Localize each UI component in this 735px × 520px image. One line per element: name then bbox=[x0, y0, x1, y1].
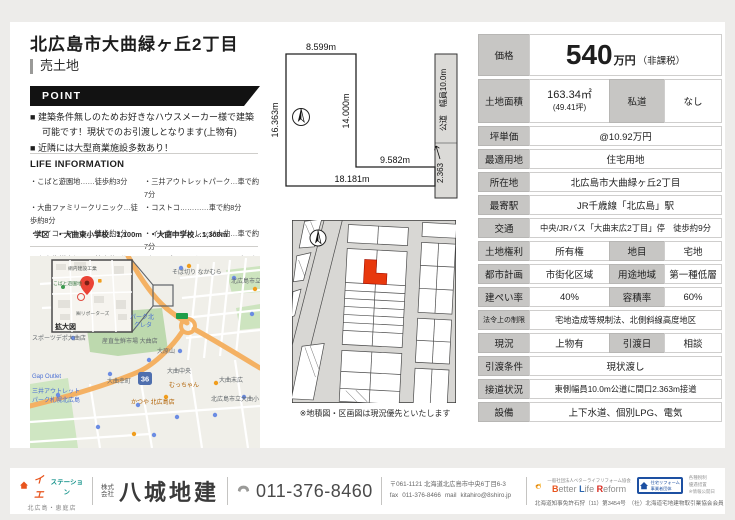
row-value: 住宅用地 bbox=[529, 149, 722, 169]
row-sublabel: 用途地域 bbox=[609, 264, 665, 284]
dim-right-inner: 14.000m bbox=[341, 93, 351, 128]
table-row: 交通 中央/JRバス「大曲末広2丁目」停 徒歩約9分 bbox=[478, 218, 722, 238]
table-row: 土地権利 所有権 地目 宅地 bbox=[478, 241, 722, 261]
house-icon bbox=[640, 482, 648, 490]
footer-note: 優遇措置 bbox=[689, 482, 715, 489]
divider bbox=[30, 246, 258, 247]
table-row: 所在地 北広島市大曲緑ヶ丘2丁目 bbox=[478, 172, 722, 192]
spec-table: 価格 540 万円 （非課税） 土地面積 163.34㎡ (49.41坪) 私道… bbox=[478, 34, 722, 422]
row-subvalue: 60% bbox=[664, 287, 722, 307]
house-icon bbox=[20, 481, 28, 490]
table-row: 最寄駅 JR千歳線「北広島」駅 bbox=[478, 195, 722, 215]
table-row: 都市計画 市街化区域 用途地域 第一種低層 bbox=[478, 264, 722, 284]
map-inset: 網内建設工業 こばと遊園地 ㈱リポーターズ 拡大図 bbox=[52, 260, 132, 332]
svg-text:パーク北: パーク北 bbox=[130, 313, 154, 321]
footer-inner: イエ ステーション 北広島・恵庭店 株式 会社 八城地建 011-376-846… bbox=[10, 468, 725, 514]
inset-label: 網内建設工業 bbox=[68, 265, 97, 272]
table-row: 接道状況 東側幅員10.0m公道に間口2.363m接道 bbox=[478, 379, 722, 399]
row-label: 土地権利 bbox=[478, 241, 530, 261]
row-label: 所在地 bbox=[478, 172, 530, 192]
compass-icon bbox=[310, 230, 326, 246]
compass-icon bbox=[293, 109, 310, 126]
row-sublabel: 私道 bbox=[609, 79, 665, 123]
brand-name-ie: イエ bbox=[30, 471, 48, 501]
row-label: 最寄駅 bbox=[478, 195, 530, 215]
footer: イエ ステーション 北広島・恵庭店 株式 会社 八城地建 011-376-846… bbox=[10, 468, 725, 514]
svg-text:Gap Outlet: Gap Outlet bbox=[32, 374, 61, 380]
brand-branch: 北広島・恵庭店 bbox=[20, 503, 84, 512]
svg-text:北広島市立大曲小: 北広島市立大曲小 bbox=[211, 395, 259, 403]
certifications-block: 一般社団法人ベターライフリフォーム協会 Better Life Reform 住… bbox=[535, 475, 715, 506]
svg-text:大曲末広: 大曲末広 bbox=[219, 376, 243, 384]
row-label: 法令上の制限 bbox=[478, 310, 530, 330]
table-row: 建ぺい率 40% 容積率 60% bbox=[478, 287, 722, 307]
land-area-sqm: 163.34㎡ bbox=[547, 89, 592, 103]
destination-pin-center bbox=[85, 281, 90, 286]
page-title: 北広島市大曲緑ヶ丘2丁目 bbox=[30, 30, 238, 55]
row-label: 土地面積 bbox=[478, 79, 530, 123]
life-item: ・大曲ファミリークリニック…徒歩約8分 bbox=[30, 201, 144, 227]
location-map: 36 網内建設工業 こばと遊園地 ㈱リポーターズ 拡大図 bbox=[30, 256, 260, 448]
table-row: 現況 上物有 引渡日 相談 bbox=[478, 333, 722, 353]
svg-text:むっちゃん: むっちゃん bbox=[169, 382, 199, 389]
blr-text: eform bbox=[603, 484, 626, 494]
table-row: 坪単価 @10.92万円 bbox=[478, 126, 722, 146]
price-number: 540 bbox=[566, 41, 613, 69]
route-shield: 36 bbox=[138, 372, 152, 385]
brand-logo: イエ ステーション 北広島・恵庭店 bbox=[20, 471, 84, 512]
company-prefix: 株式 会社 bbox=[101, 484, 114, 499]
divider bbox=[92, 477, 93, 505]
row-value: 現状渡し bbox=[529, 356, 722, 376]
phone-icon bbox=[236, 484, 251, 499]
row-subvalue: 第一種低層 bbox=[664, 264, 722, 284]
svg-text:大原山: 大原山 bbox=[157, 347, 175, 355]
dim-strip-top: 9.582m bbox=[380, 155, 410, 165]
dim-top: 8.599m bbox=[306, 42, 336, 52]
blr-logo: 一般社団法人ベターライフリフォーム協会 Better Life Reform bbox=[547, 478, 630, 494]
phone-block: 011-376-8460 bbox=[236, 481, 373, 502]
inset-label: こばと遊園地 bbox=[53, 280, 82, 287]
company-prefix-line: 株式 bbox=[101, 484, 114, 491]
row-label: 引渡条件 bbox=[478, 356, 530, 376]
row-value: 北広島市大曲緑ヶ丘2丁目 bbox=[529, 172, 722, 192]
life-item: ・こばと遊園地……徒歩約3分 bbox=[30, 175, 144, 201]
row-value: 所有権 bbox=[529, 241, 610, 261]
svg-text:北広島市立: 北広島市立 bbox=[231, 277, 260, 285]
phone-number: 011-376-8460 bbox=[256, 481, 373, 502]
license-line: 北海道知事免許石狩（11）第3454号 （社）北海道宅地建物取引業協会会員 bbox=[535, 499, 715, 507]
inset-label: ㈱リポーターズ bbox=[76, 310, 110, 317]
row-value: 宅地造成等規制法、北側斜線高度地区 bbox=[529, 310, 722, 330]
point-item: 建築条件無しのためお好きなハウスメーカー様で建築可能です！現状でのお引渡しとなり… bbox=[30, 110, 262, 141]
property-type: 売土地 bbox=[30, 59, 79, 74]
flyer-page: 北広島市大曲緑ヶ丘2丁目 売土地 POINT 建築条件無しのためお好きなハウスメ… bbox=[0, 0, 735, 520]
point-banner: POINT bbox=[30, 86, 260, 106]
footer-notes: 各種税制 優遇措置 ※情報公開日 bbox=[689, 475, 715, 495]
row-value: 東側幅員10.0m公道に間口2.363m接道 bbox=[529, 379, 722, 399]
row-label: 都市計画 bbox=[478, 264, 530, 284]
row-value: 中央/JRバス「大曲末広2丁目」停 徒歩約9分 bbox=[529, 218, 722, 238]
table-row: 設備 上下水道、個別LPG、電気 bbox=[478, 402, 722, 422]
postal-address: 〒061-1121 北海道北広島市中央6丁目6-3 bbox=[390, 480, 518, 491]
survey-diagram: 8.599m 16.363m 14.000m 9.582m 18.181m 2.… bbox=[262, 38, 462, 210]
divider bbox=[227, 477, 228, 505]
block-diagram-note: ※地積図・区画図は現況優先といたします bbox=[262, 408, 488, 419]
price-unit: 万円 bbox=[614, 52, 636, 68]
row-subvalue: 宅地 bbox=[664, 241, 722, 261]
divider bbox=[381, 477, 382, 505]
svg-text:パーク札幌北広島: パーク札幌北広島 bbox=[32, 396, 80, 404]
row-sublabel: 引渡日 bbox=[609, 333, 665, 353]
price-tax-note: （非課税） bbox=[638, 53, 686, 67]
svg-text:産直生鮮市場 大曲店: 産直生鮮市場 大曲店 bbox=[102, 337, 158, 345]
svg-text:三井アウトレット: 三井アウトレット bbox=[32, 387, 80, 395]
row-value: JR千歳線「北広島」駅 bbox=[529, 195, 722, 215]
address-block: 〒061-1121 北海道北広島市中央6丁目6-3 fax 011-376-84… bbox=[390, 480, 518, 501]
row-label: 価格 bbox=[478, 34, 530, 76]
blr-text: etter bbox=[559, 484, 577, 494]
table-row: 最適用地 住宅用地 bbox=[478, 149, 722, 169]
reform-box-line: 事業者団体 bbox=[651, 486, 680, 491]
mail-label: mail bbox=[445, 491, 457, 502]
footer-note: ※情報公開日 bbox=[689, 489, 715, 496]
row-sublabel: 容積率 bbox=[609, 287, 665, 307]
dim-bottom: 18.181m bbox=[334, 174, 369, 184]
row-label: 最適用地 bbox=[478, 149, 530, 169]
table-row: 法令上の制限 宅地造成等規制法、北側斜線高度地区 bbox=[478, 310, 722, 330]
dim-frontage: 2.363 bbox=[436, 162, 445, 183]
store-pin bbox=[98, 279, 102, 283]
reform-registration-mark: 住宅リフォーム 事業者団体 bbox=[637, 477, 683, 494]
reform-box-line: 住宅リフォーム bbox=[651, 480, 680, 485]
row-value: 市街化区域 bbox=[529, 264, 610, 284]
svg-text:スポーツデポ大曲店: スポーツデポ大曲店 bbox=[32, 334, 86, 342]
land-area-tsubo: (49.41坪) bbox=[553, 103, 586, 113]
fax-label: fax bbox=[390, 491, 398, 502]
divider bbox=[30, 153, 258, 154]
brand-name-station: ステーション bbox=[50, 476, 84, 496]
company-name: 八城地建 bbox=[119, 475, 219, 507]
row-label: 現況 bbox=[478, 333, 530, 353]
life-information-list: ・こばと遊園地……徒歩約3分 ・三井アウトレットパーク…車で約7分 ・大曲ファミ… bbox=[30, 175, 262, 266]
mail-address: kitahiro@8shiro.jp bbox=[460, 491, 511, 502]
row-label: 交通 bbox=[478, 218, 530, 238]
row-sublabel: 地目 bbox=[609, 241, 665, 261]
svg-text:大曲中央: 大曲中央 bbox=[167, 367, 191, 375]
row-subvalue: 相談 bbox=[664, 333, 722, 353]
school-district: 学区 ・大曲東小学校…1,100m ・大曲中学校…1,300m bbox=[34, 229, 227, 240]
svg-text:かつや 北広島店: かつや 北広島店 bbox=[131, 398, 175, 406]
land-area-value: 163.34㎡ (49.41坪) bbox=[529, 79, 610, 123]
point-list: 建築条件無しのためお好きなハウスメーカー様で建築可能です！現状でのお引渡しとなり… bbox=[30, 110, 262, 156]
row-label: 建ぺい率 bbox=[478, 287, 530, 307]
fax-number: 011-376-8466 bbox=[402, 491, 441, 502]
row-label: 設備 bbox=[478, 402, 530, 422]
mascot-icon bbox=[535, 478, 542, 494]
svg-text:大曲幸町: 大曲幸町 bbox=[107, 377, 131, 385]
life-information-heading: LIFE INFORMATION bbox=[30, 159, 124, 170]
row-value: 上物有 bbox=[529, 333, 610, 353]
life-item: ・コストコ…………車で約8分 bbox=[144, 201, 262, 227]
company-prefix-line: 会社 bbox=[101, 491, 114, 498]
block-diagram bbox=[292, 220, 456, 403]
svg-text:クレタ: クレタ bbox=[134, 321, 152, 329]
price-value: 540 万円 （非課税） bbox=[529, 34, 722, 76]
row-label: 接道状況 bbox=[478, 379, 530, 399]
table-row-price: 価格 540 万円 （非課税） bbox=[478, 34, 722, 76]
road-label: 公道 幅員10.0m bbox=[438, 69, 448, 132]
row-label: 坪単価 bbox=[478, 126, 530, 146]
row-subvalue: なし bbox=[664, 79, 722, 123]
divider bbox=[526, 477, 527, 505]
inset-zoom-label: 拡大図 bbox=[55, 322, 76, 331]
svg-text:そば切り なかむら: そば切り なかむら bbox=[172, 268, 222, 276]
table-row: 引渡条件 現状渡し bbox=[478, 356, 722, 376]
row-value: @10.92万円 bbox=[529, 126, 722, 146]
row-value: 上下水道、個別LPG、電気 bbox=[529, 402, 722, 422]
table-row: 土地面積 163.34㎡ (49.41坪) 私道 なし bbox=[478, 79, 722, 123]
interchange-badge bbox=[176, 313, 188, 319]
blr-text: ife bbox=[585, 484, 595, 494]
company-block: 株式 会社 八城地建 bbox=[101, 475, 219, 507]
svg-text:36: 36 bbox=[141, 375, 149, 384]
life-item: ・三井アウトレットパーク…車で約7分 bbox=[144, 175, 262, 201]
dim-left: 16.363m bbox=[270, 102, 280, 137]
row-value: 40% bbox=[529, 287, 610, 307]
